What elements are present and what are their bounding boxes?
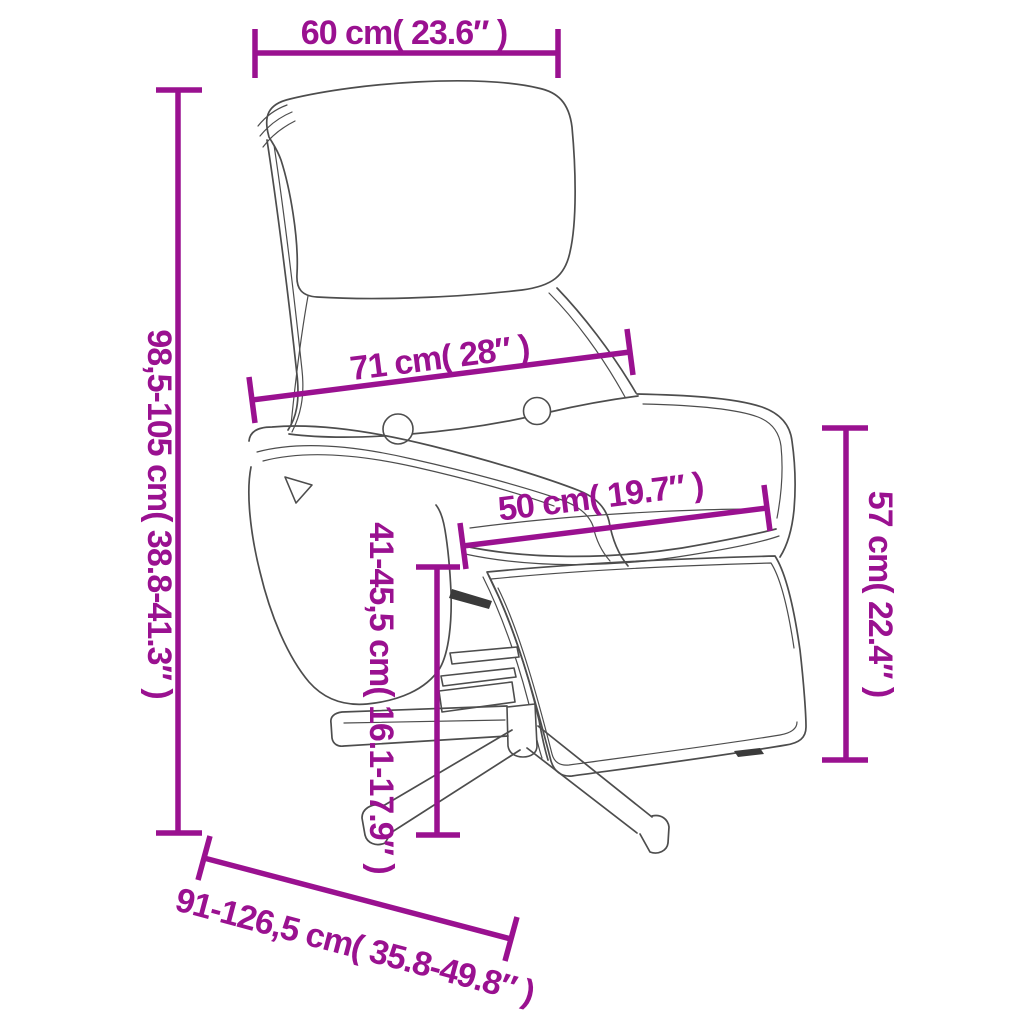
dimension-total-height: 98,5-105 cm( 38.8-41.3″ ): [140, 90, 202, 833]
dimension-label-back-width: 71 cm( 28″ ): [348, 328, 531, 388]
armrest-bracket: [285, 477, 312, 503]
armrest-left-panel: [249, 467, 451, 704]
dimension-depth: 91-126,5 cm( 35.8-49.8″ ): [171, 836, 538, 1012]
base-leg-left: [331, 706, 508, 746]
dimension-tick: [249, 377, 255, 423]
tuft-button-left: [383, 414, 413, 444]
dimension-tick: [627, 329, 633, 375]
headrest-cushion: [267, 81, 575, 299]
cushion-fold-lines: [258, 105, 295, 147]
footrest-latch-tab: [734, 748, 764, 757]
dimension-label-backrest-height: 57 cm( 22.4″ ): [861, 491, 899, 697]
dimension-tick: [460, 523, 466, 569]
dimension-label-total-height: 98,5-105 cm( 38.8-41.3″ ): [140, 329, 178, 698]
diagram-svg: 60 cm( 23.6″ ) 98,5-105 cm( 38.8-41.3″ )…: [0, 0, 1024, 1024]
dimension-diagram: 60 cm( 23.6″ ) 98,5-105 cm( 38.8-41.3″ )…: [0, 0, 1024, 1024]
base-leg-front-right: [527, 726, 669, 853]
leg-foot-cap-right: [640, 816, 669, 853]
dimension-tick: [764, 485, 770, 531]
backrest-tuft-line: [289, 396, 638, 437]
dimension-back-width: 71 cm( 28″ ): [249, 328, 633, 423]
dimension-top-width: 60 cm( 23.6″ ): [255, 14, 558, 78]
dimension-label-top-width: 60 cm( 23.6″ ): [301, 14, 507, 52]
backrest-edge-right: [549, 288, 636, 397]
dimension-label-seat-height: 41-45,5 cm( 16.1-17.9″ ): [362, 522, 400, 873]
dimension-backrest-height: 57 cm( 22.4″ ): [822, 428, 899, 760]
tuft-button-right: [524, 398, 551, 425]
recliner-chair-drawing: [249, 81, 806, 853]
